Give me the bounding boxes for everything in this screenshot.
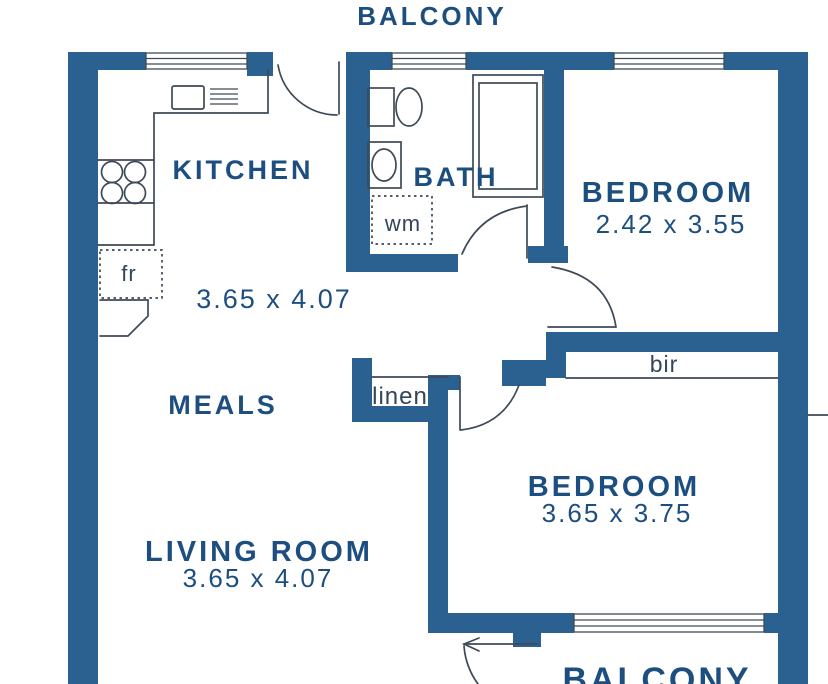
meals-label: MEALS [168,390,278,420]
wall-right-outer [778,52,808,684]
wall-bath-bedroom1-divider [544,52,564,248]
balcony-top-label: BALCONY [357,1,507,31]
wall-bedroom2-bottom-right [764,613,808,633]
kitchen-window [146,53,247,69]
wall-left-outer [68,52,98,684]
sink [172,86,238,109]
wall-top-bath-bedroom [466,52,614,70]
fridge-label: fr [121,261,136,286]
bedroom1-window [614,53,724,69]
stove [98,160,154,204]
bedroom2-sliding-door [574,614,764,632]
wall-balcony-door-stub [513,633,541,647]
wall-bedroom2-left [428,375,448,633]
kitchen-label: KITCHEN [173,155,314,185]
wall-bath-bottom [346,254,458,272]
walls [68,52,808,684]
linen-label: linen [372,383,428,410]
built-in-robe-label: bir [650,351,679,377]
wall-divider-foot [528,246,568,263]
wall-corner-step [502,360,546,386]
wall-top-right [724,52,778,70]
wall-bir-bedroom-divider [546,332,778,352]
wall-bedroom2-bottom-left [428,613,574,633]
wall-corner-post [546,332,566,378]
wall-top-bath-left [370,52,392,70]
bath-door-swing [462,205,527,258]
bath-window [392,53,466,69]
balcony-bottom-label: BALCONY [562,661,751,684]
washing-machine-label: wm [384,211,421,236]
wall-kitchen-bath-divider [346,52,370,272]
wall-balcony-door-jamb [247,52,273,76]
living-room-dimensions: 3.65 x 4.07 [183,563,334,593]
bench-end [100,300,148,336]
floor-plan: BALCONY KITCHEN BATH BEDROOM 2.42 x 3.55… [0,0,828,684]
floor-plan-canvas: BALCONY KITCHEN BATH BEDROOM 2.42 x 3.55… [0,0,828,684]
bedroom2-dimensions: 3.65 x 3.75 [542,498,693,528]
bedroom1-label: BEDROOM [582,177,754,209]
toilet [368,88,422,126]
bedroom1-dimensions: 2.42 x 3.55 [596,209,747,239]
wall-top-kitchen [68,52,146,70]
bath-label: BATH [414,162,499,192]
balcony-door-top-swing [278,62,339,115]
basin [368,142,401,188]
kitchen-meals-dimensions: 3.65 x 4.07 [196,284,352,314]
bedroom1-door-swing [548,267,616,327]
wall-linen-foot [448,375,460,390]
